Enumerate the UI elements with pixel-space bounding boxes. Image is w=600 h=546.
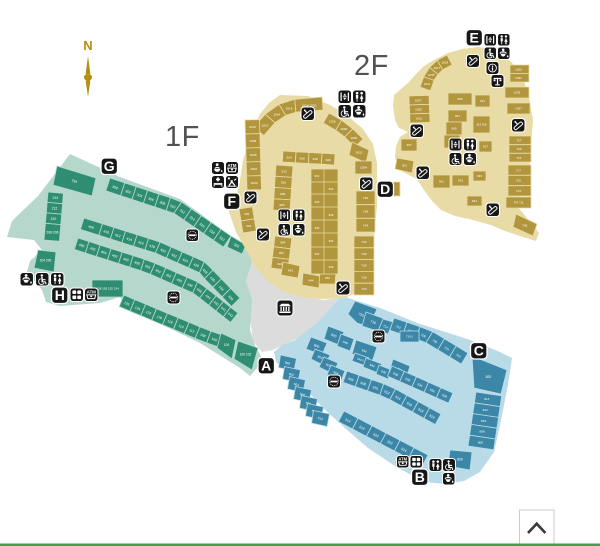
svg-text:916: 916 xyxy=(300,156,305,160)
svg-text:931: 931 xyxy=(472,199,477,203)
svg-text:901: 901 xyxy=(439,180,444,184)
svg-text:740: 740 xyxy=(363,196,368,200)
svg-text:918: 918 xyxy=(313,157,318,161)
svg-text:713: 713 xyxy=(516,189,521,193)
svg-text:928: 928 xyxy=(329,213,334,217)
svg-text:1032: 1032 xyxy=(356,151,363,155)
svg-text:934: 934 xyxy=(315,252,320,256)
svg-text:930: 930 xyxy=(315,226,320,230)
svg-text:730: 730 xyxy=(361,252,366,256)
svg-text:942: 942 xyxy=(288,268,293,272)
svg-text:210: 210 xyxy=(51,217,57,221)
svg-text:723: 723 xyxy=(516,147,521,151)
svg-text:728: 728 xyxy=(361,264,366,268)
svg-text:738: 738 xyxy=(363,210,368,214)
svg-text:814: 814 xyxy=(484,397,489,401)
svg-text:715: 715 xyxy=(516,179,521,183)
svg-text:1017: 1017 xyxy=(433,66,440,70)
svg-text:902: 902 xyxy=(279,251,284,255)
svg-text:810: 810 xyxy=(481,419,486,423)
svg-text:913 915: 913 915 xyxy=(476,123,487,127)
svg-text:1011: 1011 xyxy=(424,82,431,86)
svg-text:D: D xyxy=(380,181,390,197)
svg-text:800: 800 xyxy=(457,458,463,462)
svg-text:204 200: 204 200 xyxy=(40,259,52,263)
svg-text:1014: 1014 xyxy=(273,113,280,117)
svg-text:1012: 1012 xyxy=(262,123,269,127)
svg-text:324: 324 xyxy=(246,224,251,228)
svg-text:919: 919 xyxy=(458,179,463,183)
svg-text:1028: 1028 xyxy=(340,127,347,131)
svg-text:1005: 1005 xyxy=(415,107,422,111)
svg-text:721: 721 xyxy=(516,156,521,160)
svg-text:1035: 1035 xyxy=(514,91,521,95)
svg-text:1006: 1006 xyxy=(250,153,257,157)
svg-text:933: 933 xyxy=(477,174,482,178)
svg-text:920: 920 xyxy=(326,158,331,162)
svg-text:908: 908 xyxy=(280,192,285,196)
svg-text:1008: 1008 xyxy=(249,139,256,143)
svg-text:100 102: 100 102 xyxy=(240,353,252,357)
svg-text:A: A xyxy=(261,358,271,374)
svg-text:806: 806 xyxy=(478,440,483,444)
svg-text:1025: 1025 xyxy=(515,67,522,71)
svg-text:ATM: ATM xyxy=(87,290,97,295)
svg-text:924: 924 xyxy=(329,187,334,191)
svg-text:812: 812 xyxy=(483,408,488,412)
svg-text:726: 726 xyxy=(361,275,366,279)
svg-text:C: C xyxy=(474,343,484,359)
svg-text:301: 301 xyxy=(402,163,407,167)
svg-text:E: E xyxy=(470,30,479,46)
svg-text:2F: 2F xyxy=(354,50,389,82)
svg-text:707 711: 707 711 xyxy=(514,201,524,205)
svg-text:1001: 1001 xyxy=(415,116,422,120)
svg-text:909: 909 xyxy=(457,97,462,101)
svg-text:724: 724 xyxy=(361,287,366,291)
svg-text:1000: 1000 xyxy=(251,181,258,185)
svg-text:1030: 1030 xyxy=(350,136,357,140)
svg-text:936: 936 xyxy=(329,265,334,269)
svg-text:940: 940 xyxy=(325,276,330,280)
svg-text:734: 734 xyxy=(363,223,368,227)
svg-text:912: 912 xyxy=(282,169,287,173)
svg-text:F: F xyxy=(228,193,237,209)
svg-text:926: 926 xyxy=(315,200,320,204)
svg-text:1016: 1016 xyxy=(286,107,293,111)
svg-text:907: 907 xyxy=(455,114,460,118)
svg-text:911: 911 xyxy=(480,99,485,103)
svg-text:214: 214 xyxy=(52,196,58,200)
svg-text:ATM: ATM xyxy=(398,457,407,462)
svg-text:1007: 1007 xyxy=(415,98,422,102)
svg-text:808: 808 xyxy=(479,430,484,434)
svg-text:212: 212 xyxy=(52,206,58,210)
svg-text:727: 727 xyxy=(516,138,521,142)
svg-text:820: 820 xyxy=(486,375,492,379)
svg-text:1004: 1004 xyxy=(250,167,257,171)
svg-text:B: B xyxy=(415,469,425,485)
svg-text:104: 104 xyxy=(224,343,230,347)
svg-text:717: 717 xyxy=(516,168,521,172)
svg-text:H: H xyxy=(55,287,65,303)
svg-text:1010: 1010 xyxy=(249,125,256,129)
svg-text:N: N xyxy=(83,38,92,53)
svg-text:732: 732 xyxy=(361,240,366,244)
svg-text:1019: 1019 xyxy=(441,61,448,65)
svg-text:710-1: 710-1 xyxy=(406,335,414,339)
svg-text:208 206: 208 206 xyxy=(46,230,58,234)
svg-text:128 130 132 134: 128 130 132 134 xyxy=(96,287,119,291)
svg-text:910: 910 xyxy=(281,181,286,185)
svg-text:917: 917 xyxy=(483,145,488,149)
svg-text:1015: 1015 xyxy=(428,73,435,77)
svg-text:922: 922 xyxy=(315,174,320,178)
svg-text:G: G xyxy=(104,158,115,174)
svg-text:ATM: ATM xyxy=(228,163,237,168)
svg-text:906: 906 xyxy=(279,203,284,207)
svg-text:705: 705 xyxy=(522,223,527,227)
svg-text:944: 944 xyxy=(308,279,313,283)
svg-text:905: 905 xyxy=(451,127,456,131)
svg-text:307: 307 xyxy=(406,143,411,147)
svg-text:1034: 1034 xyxy=(360,166,367,170)
svg-text:1026: 1026 xyxy=(329,120,336,124)
svg-text:1F: 1F xyxy=(165,121,200,153)
svg-text:1031: 1031 xyxy=(515,76,522,80)
svg-text:914: 914 xyxy=(287,156,292,160)
svg-text:932: 932 xyxy=(329,239,334,243)
svg-text:326: 326 xyxy=(244,212,249,216)
svg-text:904: 904 xyxy=(280,241,285,245)
svg-text:1037: 1037 xyxy=(515,107,522,111)
